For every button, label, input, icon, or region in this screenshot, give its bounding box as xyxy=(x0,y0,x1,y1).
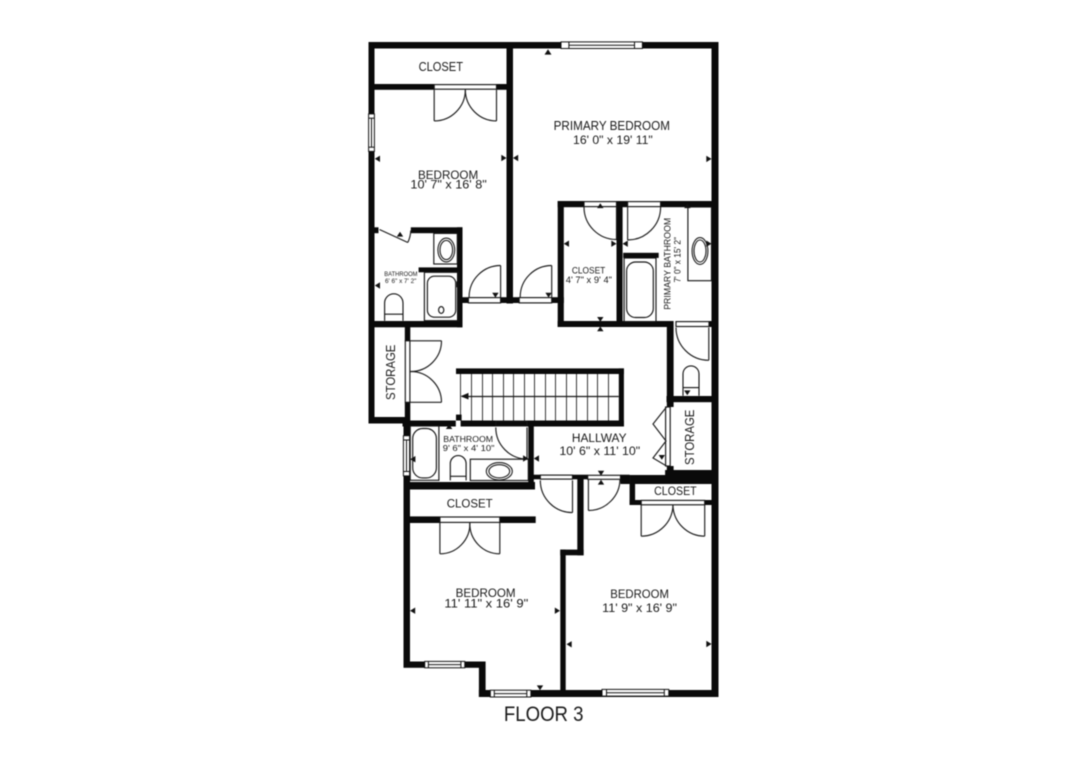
svg-text:STORAGE: STORAGE xyxy=(683,410,697,465)
svg-text:PRIMARY BEDROOM: PRIMARY BEDROOM xyxy=(554,119,670,133)
svg-text:CLOSET: CLOSET xyxy=(654,485,697,498)
svg-text:11' 9" x 16' 9": 11' 9" x 16' 9" xyxy=(602,602,677,615)
svg-text:10' 7" x 16' 8": 10' 7" x 16' 8" xyxy=(410,179,486,192)
svg-text:PRIMARY BATHROOM: PRIMARY BATHROOM xyxy=(663,218,673,310)
svg-text:CLOSET: CLOSET xyxy=(419,60,464,74)
svg-text:16' 0" x 19' 11": 16' 0" x 19' 11" xyxy=(573,133,653,147)
svg-text:CLOSET: CLOSET xyxy=(447,497,494,511)
svg-text:6' 6" x 7' 2": 6' 6" x 7' 2" xyxy=(385,278,417,285)
svg-text:HALLWAY: HALLWAY xyxy=(572,431,627,445)
svg-text:11' 11" x 16' 9": 11' 11" x 16' 9" xyxy=(444,597,528,610)
svg-text:BEDROOM: BEDROOM xyxy=(610,587,669,601)
svg-text:7' 0" x 15' 2": 7' 0" x 15' 2" xyxy=(673,237,683,283)
svg-text:STORAGE: STORAGE xyxy=(384,345,398,400)
svg-text:10' 6" x 11' 10": 10' 6" x 11' 10" xyxy=(559,446,640,458)
svg-text:CLOSET: CLOSET xyxy=(572,265,606,275)
svg-text:9' 6" x 4' 10": 9' 6" x 4' 10" xyxy=(443,443,495,453)
svg-text:FLOOR 3: FLOOR 3 xyxy=(504,702,584,726)
svg-text:4' 7" x 9' 4": 4' 7" x 9' 4" xyxy=(566,275,612,285)
